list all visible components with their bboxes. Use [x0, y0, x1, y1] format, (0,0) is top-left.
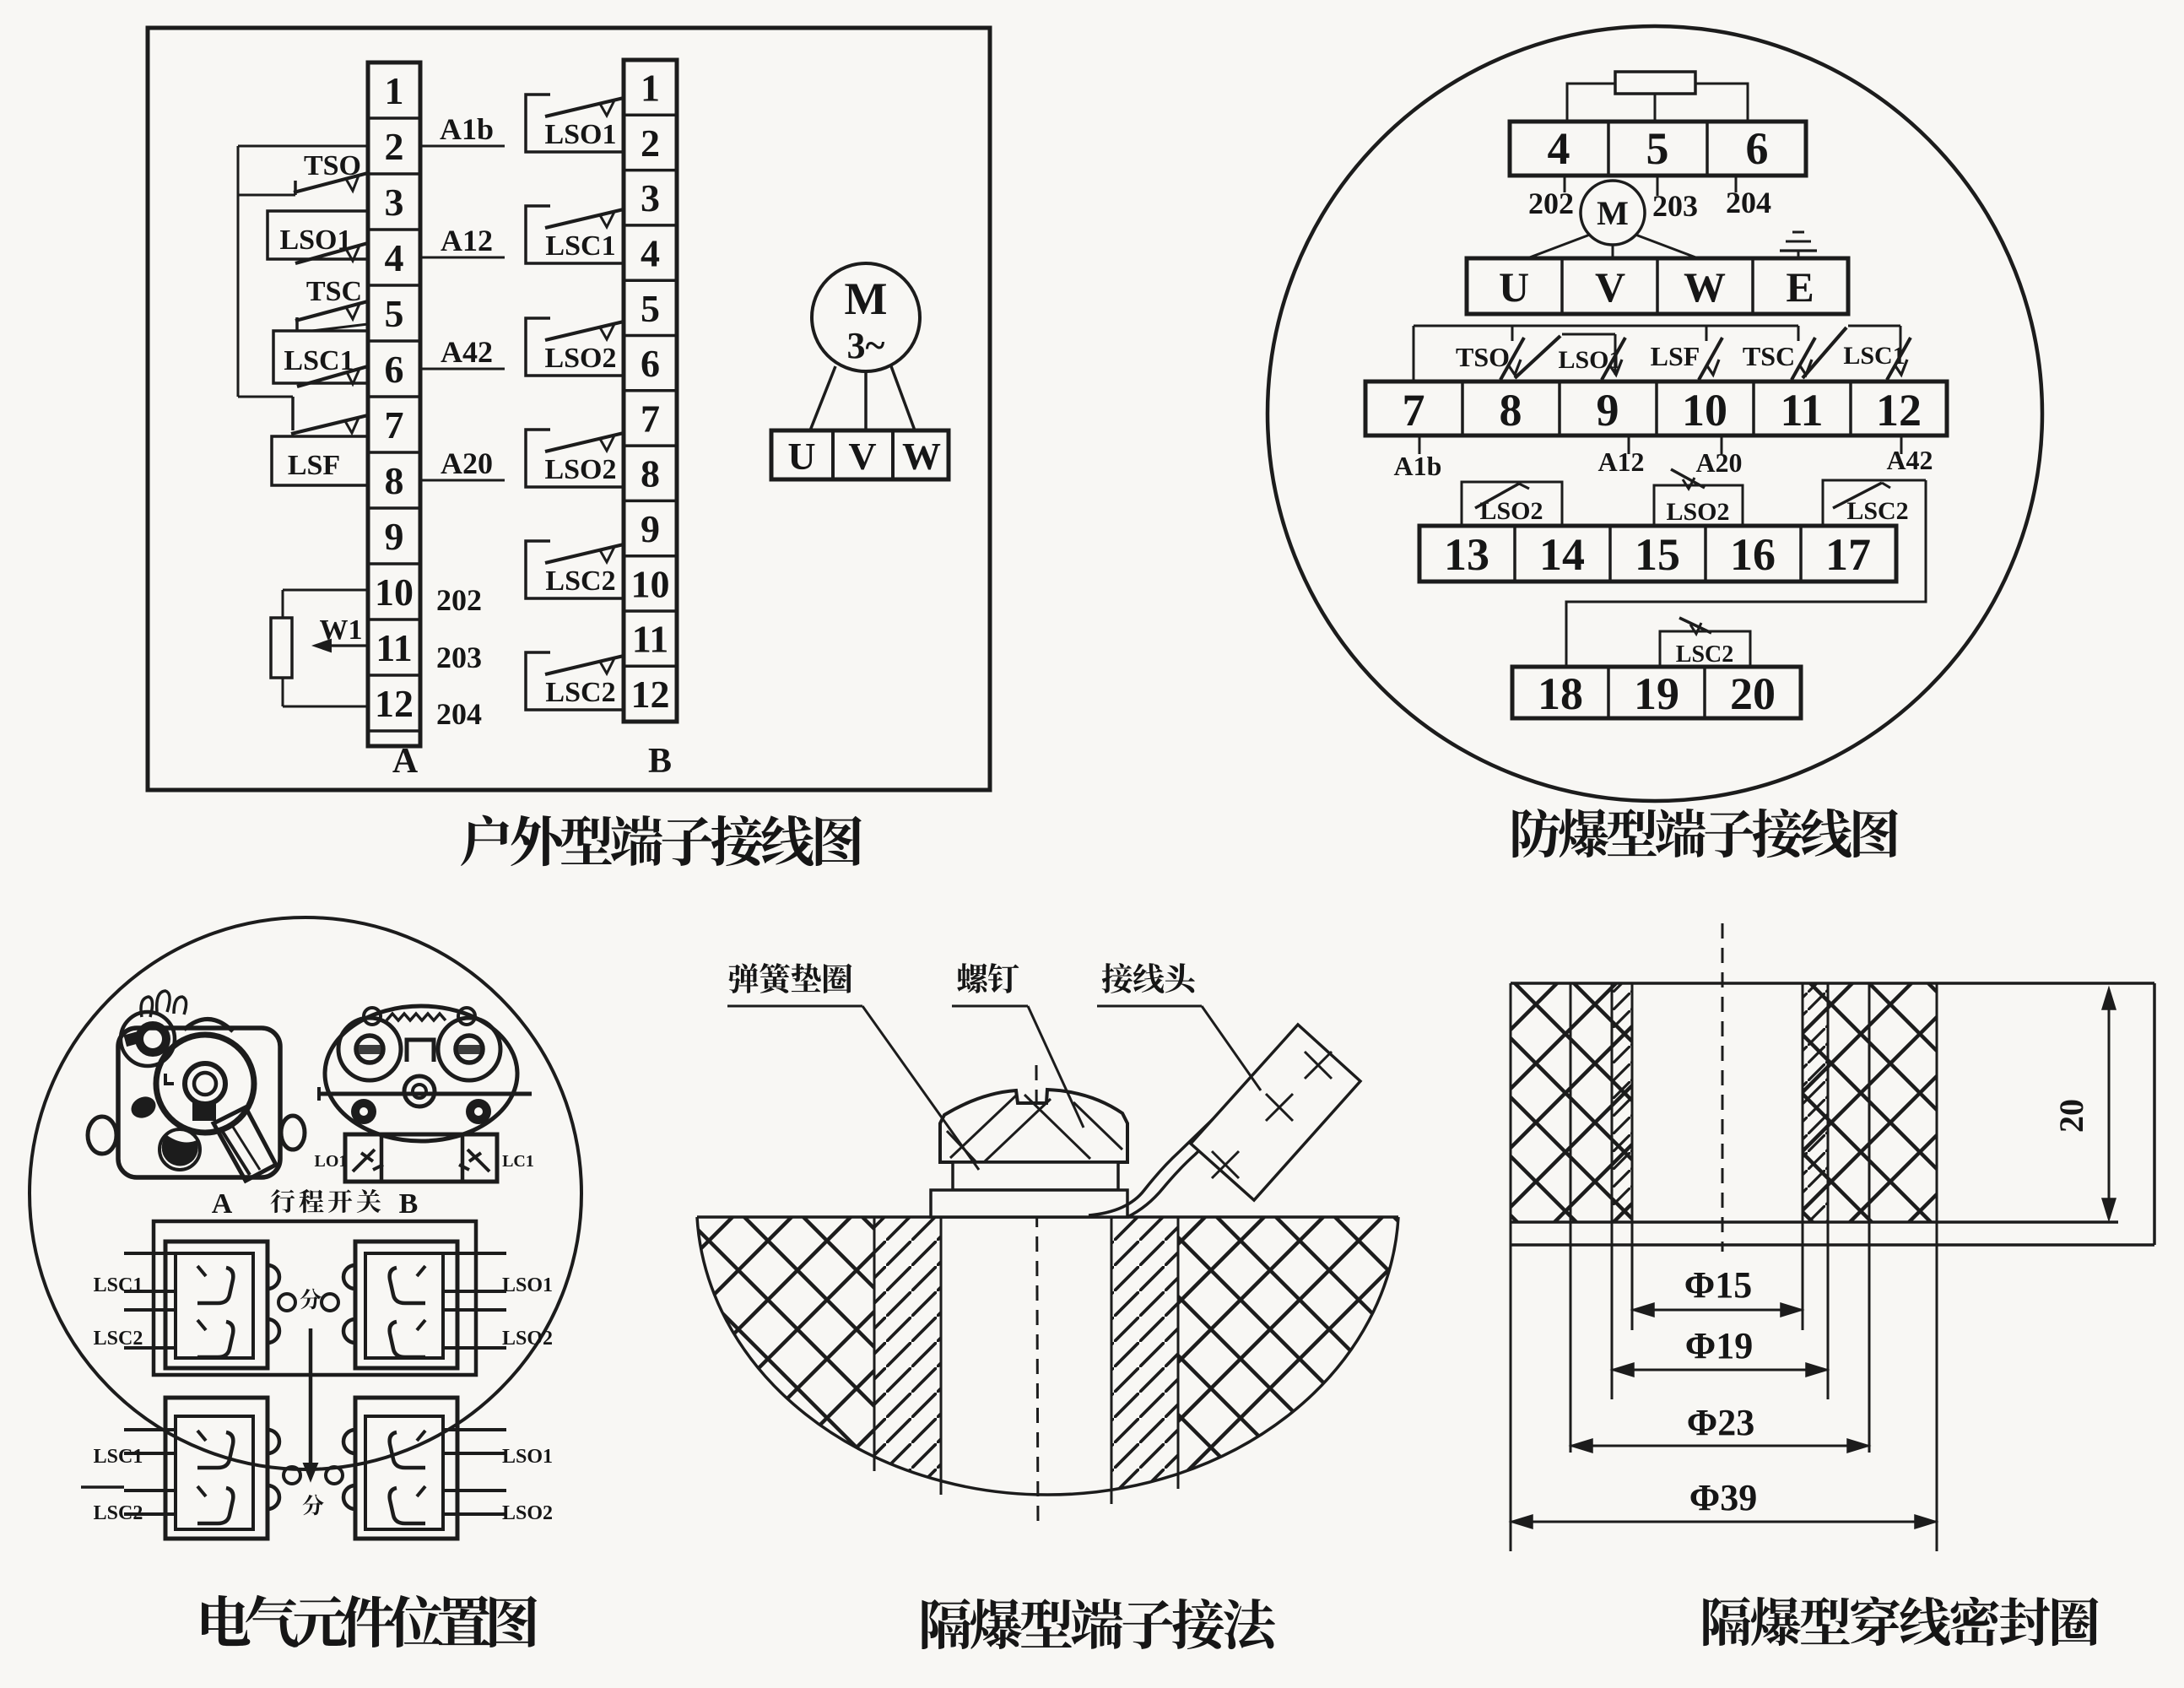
svg-text:V: V — [1595, 263, 1625, 311]
svg-text:LSO2: LSO2 — [544, 343, 616, 374]
svg-text:4: 4 — [385, 236, 404, 279]
svg-text:A20: A20 — [441, 446, 493, 480]
svg-text:15: 15 — [1635, 529, 1680, 580]
svg-text:3: 3 — [385, 181, 404, 224]
svg-text:U: U — [787, 435, 815, 478]
svg-text:A1b: A1b — [1394, 451, 1442, 481]
svg-text:7: 7 — [641, 397, 660, 440]
svg-text:12: 12 — [631, 673, 670, 716]
svg-text:10: 10 — [631, 562, 670, 605]
svg-text:LSC1: LSC1 — [545, 230, 615, 262]
svg-text:LSO2: LSO2 — [502, 1502, 553, 1524]
svg-text:LSC2: LSC2 — [94, 1502, 143, 1524]
svg-text:A20: A20 — [1695, 447, 1742, 478]
svg-text:LSO1: LSO1 — [502, 1274, 553, 1296]
svg-text:TSC: TSC — [306, 276, 362, 307]
svg-text:LO1: LO1 — [315, 1152, 348, 1171]
svg-text:13: 13 — [1444, 529, 1489, 580]
svg-text:5: 5 — [385, 292, 404, 335]
svg-text:LSO2: LSO2 — [1666, 498, 1729, 526]
svg-text:M: M — [845, 273, 888, 324]
svg-text:10: 10 — [375, 571, 414, 614]
svg-text:TSO: TSO — [1456, 342, 1510, 372]
svg-text:16: 16 — [1730, 529, 1776, 580]
svg-text:203: 203 — [1652, 189, 1698, 223]
svg-text:8: 8 — [641, 452, 660, 495]
svg-text:10: 10 — [1682, 385, 1727, 436]
svg-text:A12: A12 — [1597, 446, 1644, 477]
svg-text:202: 202 — [1528, 187, 1574, 220]
svg-text:A42: A42 — [1886, 445, 1933, 475]
svg-text:LSC2: LSC2 — [545, 565, 615, 597]
svg-text:LSO1: LSO1 — [544, 119, 616, 150]
svg-text:7: 7 — [385, 403, 404, 446]
svg-text:5: 5 — [641, 287, 660, 330]
svg-text:2: 2 — [385, 125, 404, 168]
svg-text:9: 9 — [1597, 385, 1619, 436]
svg-text:LSF: LSF — [288, 450, 340, 481]
svg-text:V: V — [848, 435, 876, 478]
svg-text:B: B — [399, 1188, 419, 1220]
svg-text:W: W — [1684, 263, 1726, 311]
svg-text:LSF: LSF — [1651, 341, 1700, 371]
svg-text:18: 18 — [1538, 668, 1583, 719]
svg-text:9: 9 — [641, 507, 660, 550]
svg-text:A1b: A1b — [440, 112, 494, 146]
svg-text:9: 9 — [385, 515, 404, 558]
svg-text:A: A — [212, 1188, 233, 1220]
svg-text:LSC2: LSC2 — [94, 1328, 143, 1350]
svg-text:LSC2: LSC2 — [545, 677, 615, 708]
svg-text:TSC: TSC — [1743, 341, 1795, 371]
svg-text:A: A — [392, 742, 419, 781]
svg-text:Φ23: Φ23 — [1687, 1402, 1754, 1443]
svg-text:LSO2: LSO2 — [502, 1328, 553, 1350]
svg-text:LC1: LC1 — [502, 1152, 534, 1171]
svg-text:8: 8 — [1500, 385, 1522, 436]
svg-text:LSC2: LSC2 — [1676, 641, 1733, 668]
svg-text:20: 20 — [1730, 668, 1776, 719]
svg-text:E: E — [1786, 263, 1814, 311]
svg-text:Φ39: Φ39 — [1689, 1477, 1757, 1518]
svg-text:11: 11 — [376, 626, 412, 669]
svg-text:20: 20 — [2052, 1099, 2090, 1133]
svg-text:LSC1: LSC1 — [94, 1446, 143, 1468]
svg-text:12: 12 — [1876, 385, 1922, 436]
svg-text:A42: A42 — [441, 335, 493, 369]
svg-text:4: 4 — [1548, 123, 1570, 174]
svg-text:1: 1 — [385, 69, 404, 112]
svg-text:Φ15: Φ15 — [1684, 1264, 1752, 1306]
svg-text:204: 204 — [1726, 186, 1771, 219]
svg-text:19: 19 — [1634, 668, 1679, 719]
svg-text:B: B — [648, 742, 672, 781]
svg-text:LSO2: LSO2 — [544, 454, 616, 485]
svg-text:11: 11 — [1780, 385, 1823, 436]
svg-text:203: 203 — [436, 641, 482, 674]
svg-text:W: W — [902, 435, 941, 478]
svg-text:1: 1 — [641, 67, 660, 110]
svg-text:7: 7 — [1403, 385, 1425, 436]
svg-text:LSC1: LSC1 — [94, 1274, 143, 1296]
svg-text:8: 8 — [385, 459, 404, 502]
svg-text:202: 202 — [436, 583, 482, 617]
svg-text:M: M — [1597, 194, 1629, 232]
svg-text:17: 17 — [1825, 529, 1871, 580]
svg-text:6: 6 — [1746, 123, 1769, 174]
svg-text:3~: 3~ — [847, 325, 885, 366]
svg-text:204: 204 — [436, 697, 482, 731]
svg-text:6: 6 — [641, 342, 660, 385]
svg-text:LSC2: LSC2 — [1846, 497, 1908, 525]
svg-text:W1: W1 — [320, 614, 363, 646]
svg-text:U: U — [1499, 263, 1529, 311]
svg-text:6: 6 — [385, 348, 404, 391]
svg-text:12: 12 — [375, 682, 414, 725]
svg-text:Φ19: Φ19 — [1685, 1325, 1753, 1366]
svg-text:5: 5 — [1646, 123, 1669, 174]
svg-text:3: 3 — [641, 176, 660, 219]
svg-text:11: 11 — [632, 618, 668, 661]
svg-text:4: 4 — [641, 232, 660, 275]
svg-text:14: 14 — [1539, 529, 1585, 580]
svg-text:2: 2 — [641, 122, 660, 165]
svg-text:LSO1: LSO1 — [502, 1446, 553, 1468]
svg-text:A12: A12 — [441, 224, 493, 257]
